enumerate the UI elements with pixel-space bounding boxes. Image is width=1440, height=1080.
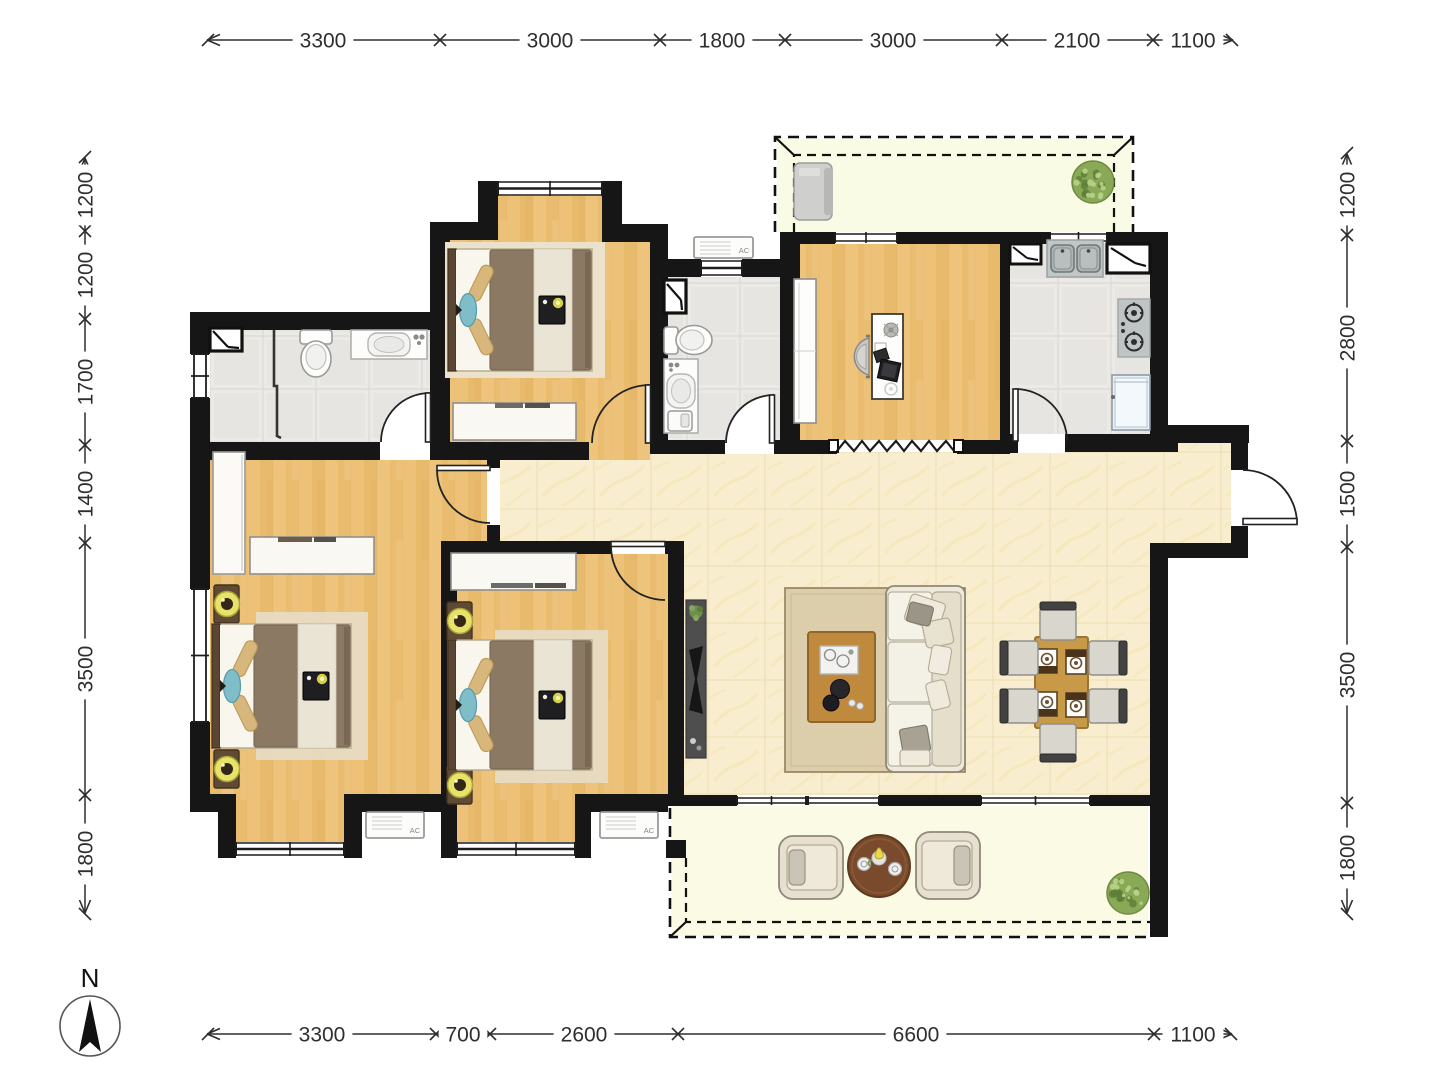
svg-text:3500: 3500: [75, 646, 98, 693]
svg-text:1800: 1800: [699, 30, 746, 53]
svg-text:3500: 3500: [1337, 652, 1360, 699]
svg-text:1200: 1200: [75, 172, 98, 219]
svg-text:6600: 6600: [893, 1024, 940, 1047]
svg-text:1100: 1100: [1170, 1024, 1215, 1047]
svg-text:1100: 1100: [1170, 30, 1215, 53]
svg-text:3300: 3300: [300, 30, 347, 53]
svg-text:1800: 1800: [1337, 835, 1360, 882]
svg-text:3000: 3000: [870, 30, 917, 53]
svg-text:1800: 1800: [75, 831, 98, 878]
svg-text:2600: 2600: [561, 1024, 608, 1047]
svg-text:N: N: [81, 963, 100, 993]
svg-text:2800: 2800: [1337, 315, 1360, 362]
svg-text:AC: AC: [644, 826, 655, 835]
svg-text:AC: AC: [410, 826, 421, 835]
svg-text:1400: 1400: [75, 471, 98, 518]
svg-text:700: 700: [445, 1024, 480, 1047]
svg-text:1700: 1700: [75, 359, 98, 406]
svg-text:1200: 1200: [1337, 172, 1360, 219]
svg-text:3300: 3300: [299, 1024, 346, 1047]
svg-text:1500: 1500: [1337, 471, 1360, 518]
svg-text:2100: 2100: [1054, 30, 1101, 53]
svg-text:1200: 1200: [75, 252, 98, 299]
svg-text:3000: 3000: [527, 30, 574, 53]
svg-text:AC: AC: [739, 246, 750, 255]
